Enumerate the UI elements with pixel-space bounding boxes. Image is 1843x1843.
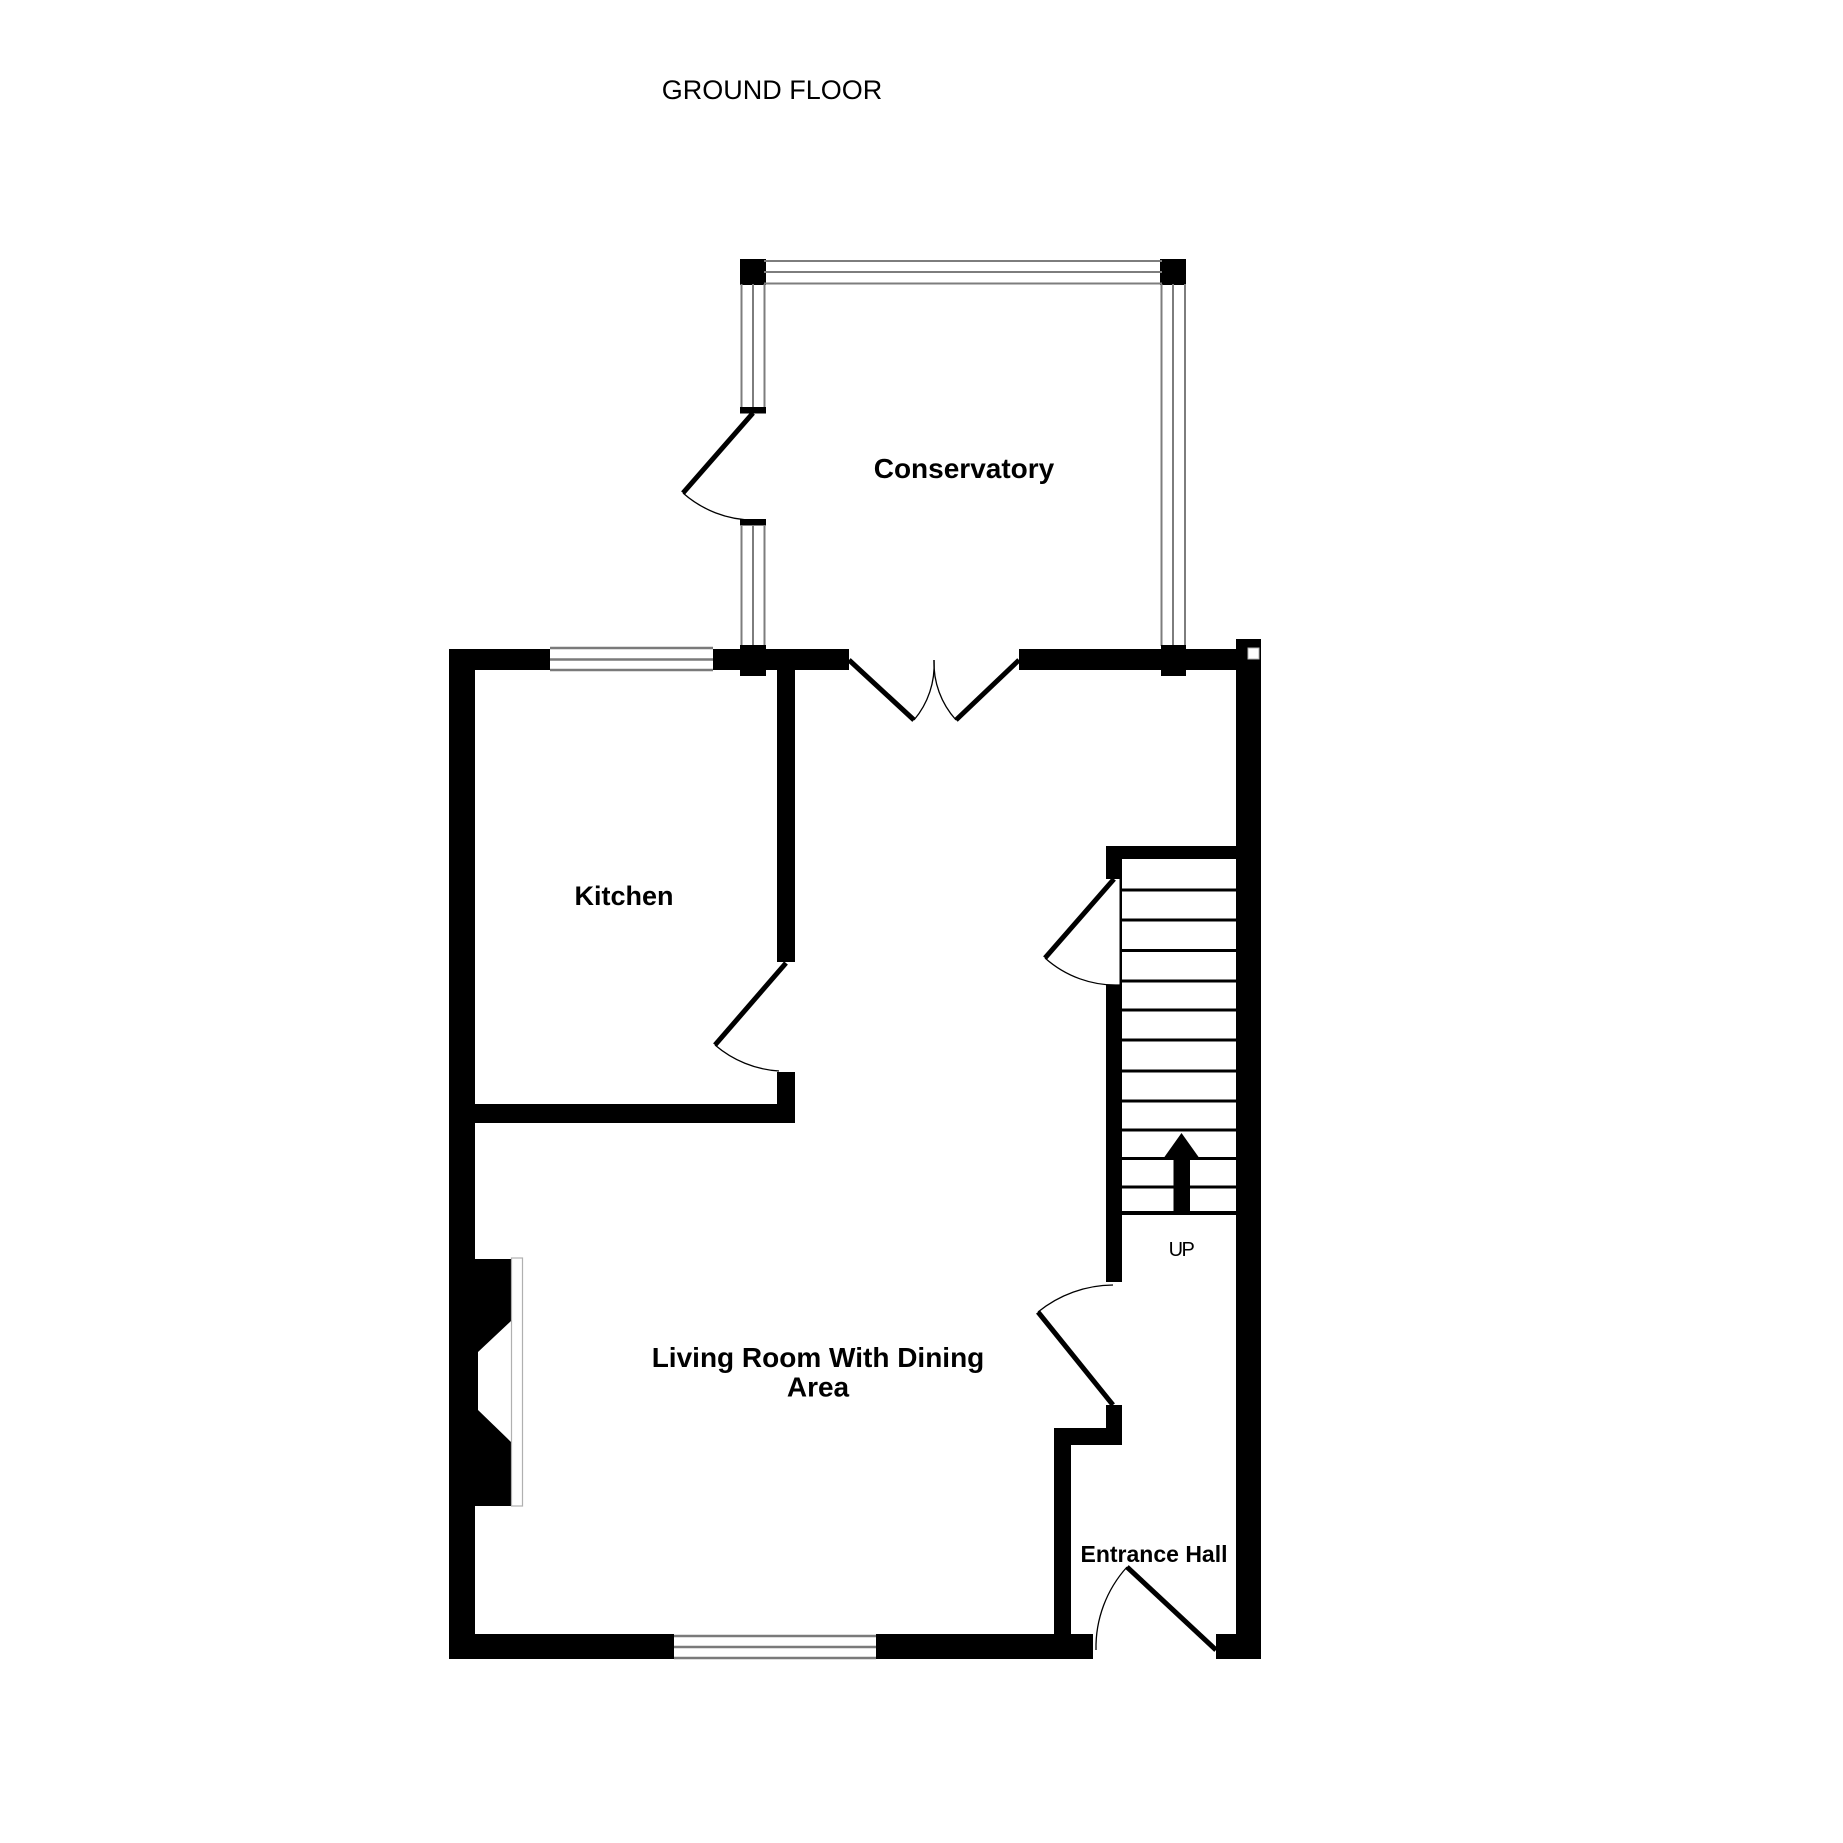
svg-text:Area: Area: [787, 1372, 850, 1403]
svg-text:Kitchen: Kitchen: [574, 881, 673, 911]
svg-text:GROUND FLOOR: GROUND FLOOR: [662, 75, 883, 105]
svg-text:UP: UP: [1169, 1239, 1195, 1261]
svg-text:Entrance Hall: Entrance Hall: [1081, 1541, 1228, 1567]
svg-text:Living Room With Dining: Living Room With Dining: [652, 1342, 985, 1373]
svg-text:Conservatory: Conservatory: [874, 453, 1055, 484]
